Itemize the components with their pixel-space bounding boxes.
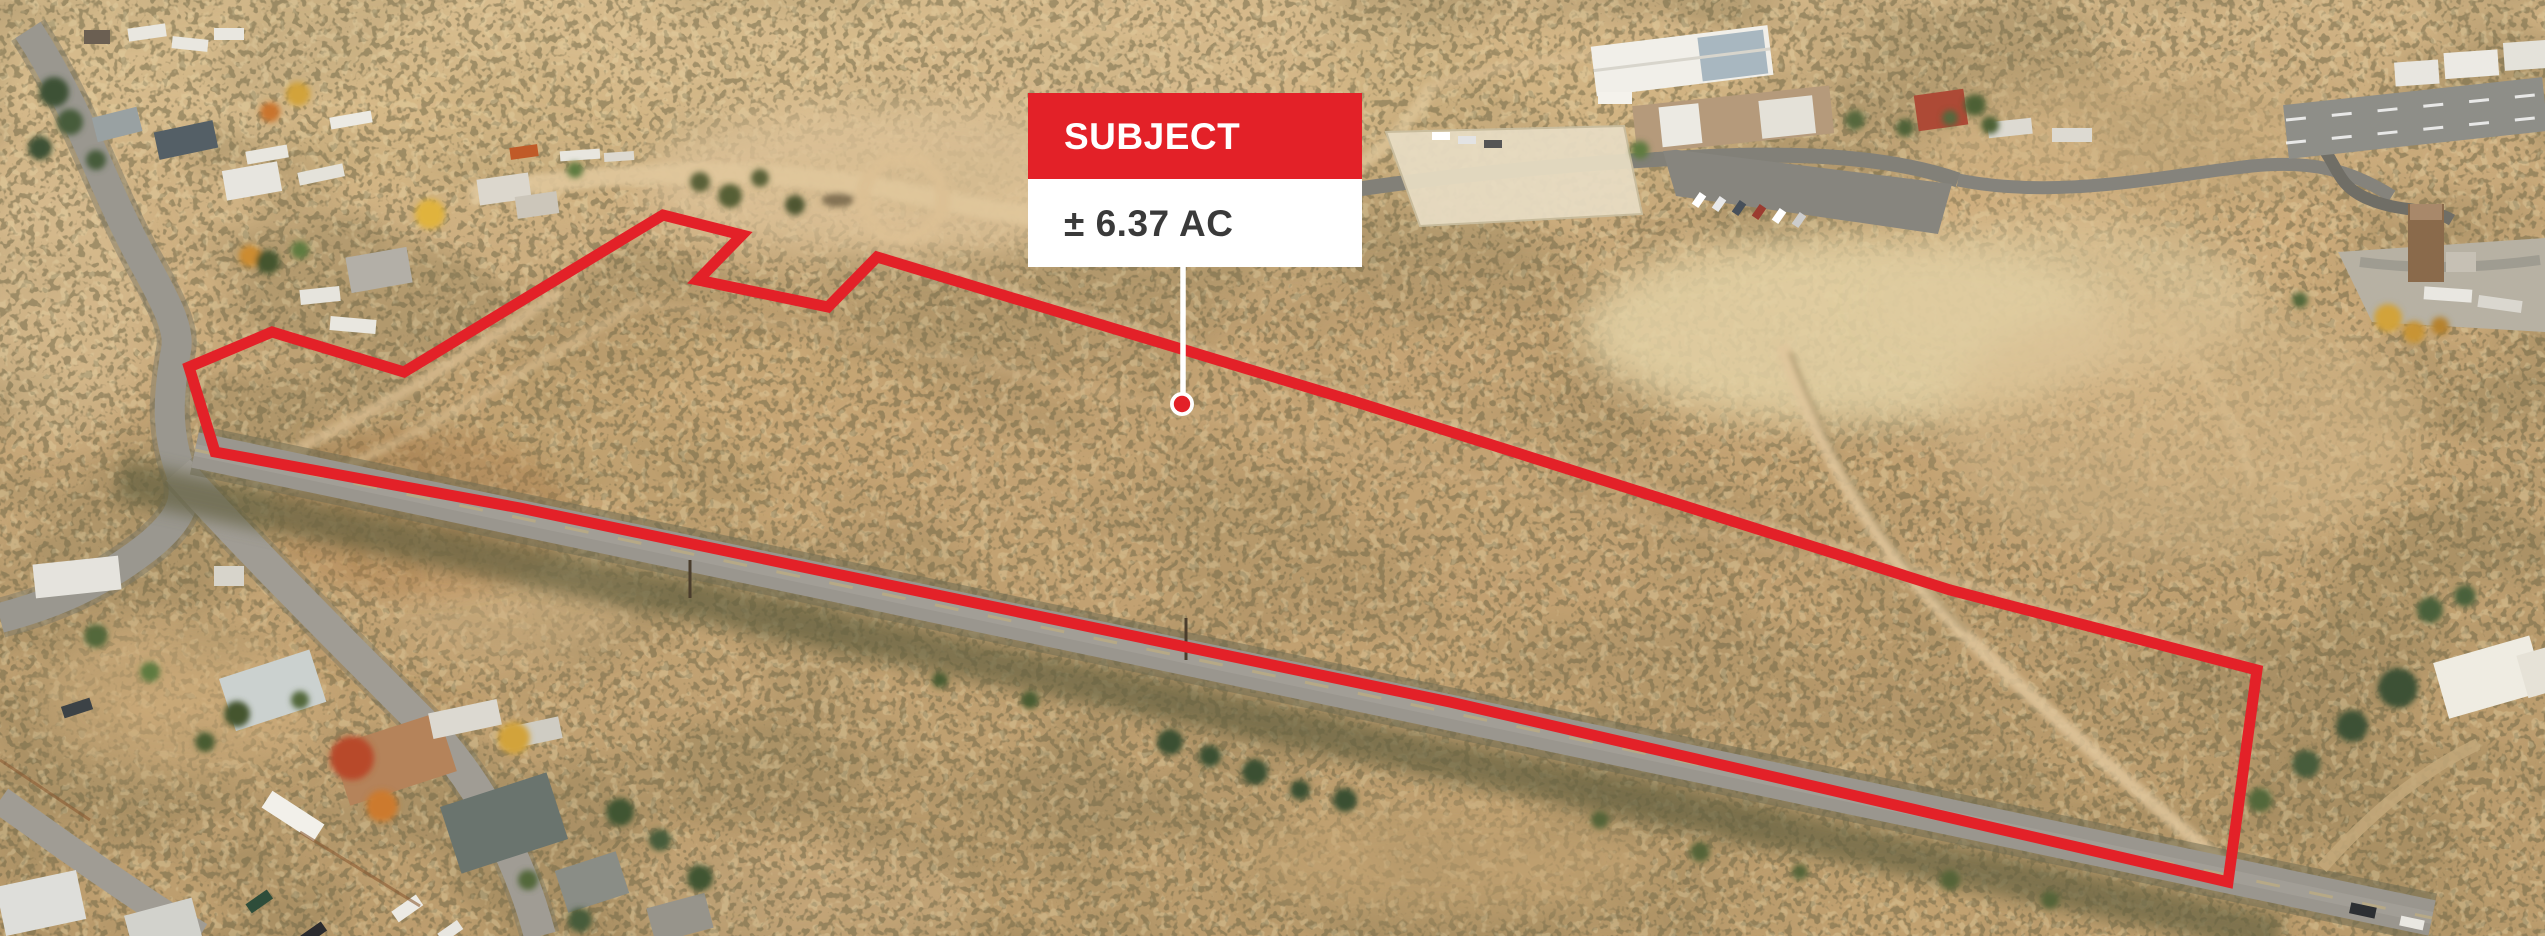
- concrete-pad: [1386, 126, 1642, 226]
- subject-label-header: SUBJECT: [1028, 93, 1362, 179]
- subject-area-value: ± 6.37 AC: [1064, 205, 1233, 242]
- subject-area-body: ± 6.37 AC: [1028, 179, 1362, 267]
- highway: [2286, 104, 2545, 132]
- subject-label-title: SUBJECT: [1064, 118, 1240, 155]
- marker-inner-dot: [1174, 396, 1190, 412]
- subject-label-card: SUBJECT ± 6.37 AC: [1028, 93, 1362, 267]
- subject-marker-dot: [1170, 392, 1194, 416]
- aerial-site-photo: SUBJECT ± 6.37 AC: [0, 0, 2545, 936]
- red-roof-house: [1914, 89, 1969, 132]
